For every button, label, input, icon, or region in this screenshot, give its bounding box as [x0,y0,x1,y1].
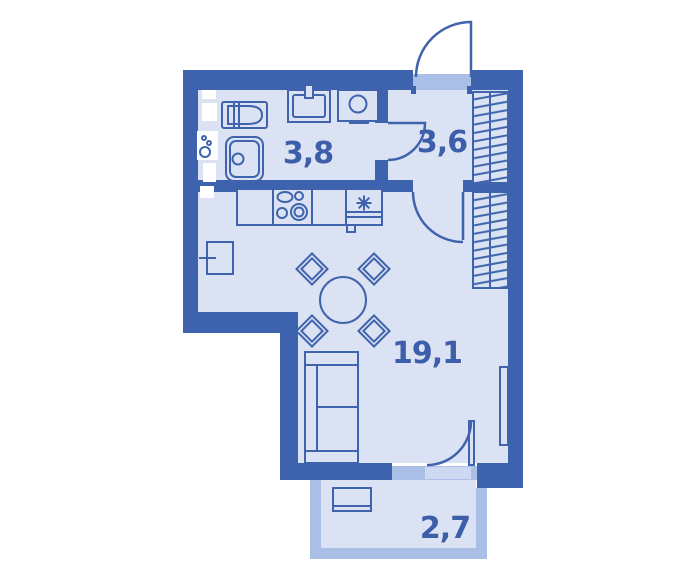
floor-plan: 3,8 3,6 19,1 2,7 [0,0,698,580]
dining-table [320,277,366,323]
kitchen-counter [237,189,382,232]
wall-left [183,70,198,333]
bathtub [222,102,267,128]
balcony-wall-left [310,480,321,559]
wall-bottom-right-corner [477,463,523,488]
shower-tray [226,137,263,181]
floor-plan-drawing: 3,8 3,6 19,1 2,7 [0,0,698,580]
balcony-area-label: 2,7 [420,511,470,546]
radiator-living [500,367,508,445]
entry-jamb-left [411,86,416,94]
wardrobe-hallway [473,92,508,183]
snowflake-icon [357,196,372,211]
bathroom-area-label: 3,8 [283,136,333,171]
balcony-wall-bottom [310,548,487,559]
wall-bottom [280,463,392,480]
entry-jamb-right [467,86,472,94]
wall-step-vertical [280,312,298,480]
washbasin [288,85,330,122]
hallway-area-label: 3,6 [417,125,467,160]
faucet-icon [305,85,313,98]
washing-machine [338,90,378,123]
wall-right [508,70,523,488]
sofa [305,352,358,463]
living-area-label: 19,1 [392,336,462,371]
balcony-door-threshold [425,467,471,479]
wardrobe-living [473,192,508,288]
entry-threshold [413,74,471,90]
entry-door [416,22,471,77]
balcony-table [333,488,371,511]
